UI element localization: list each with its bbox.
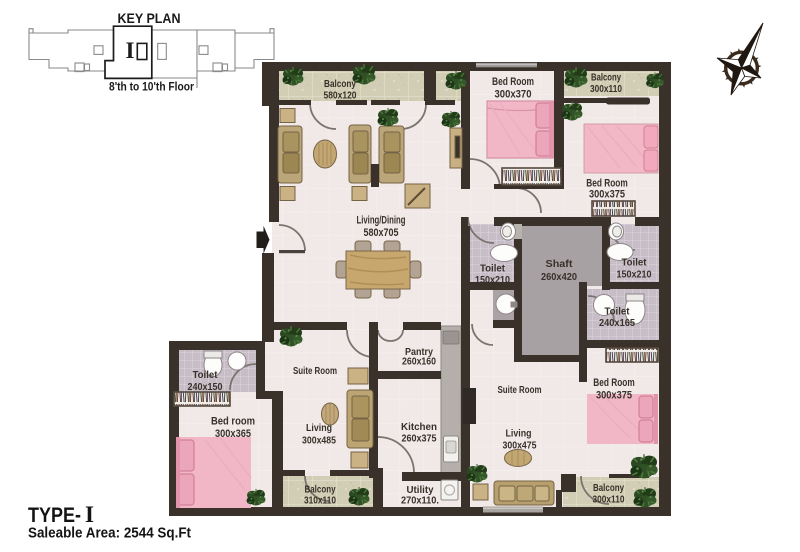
- svg-text:Suite Room: Suite Room: [498, 384, 542, 396]
- svg-text:Bed Room: Bed Room: [593, 377, 635, 389]
- svg-text:Living: Living: [506, 428, 532, 440]
- svg-text:240x150: 240x150: [188, 382, 223, 393]
- svg-text:Toilet: Toilet: [605, 307, 631, 318]
- svg-text:300x375: 300x375: [596, 390, 632, 402]
- svg-text:580x705: 580x705: [364, 227, 399, 239]
- svg-text:310x110: 310x110: [304, 496, 336, 507]
- svg-text:Bed room: Bed room: [211, 416, 255, 428]
- svg-text:270x110.: 270x110.: [401, 496, 439, 507]
- svg-text:300x370: 300x370: [495, 89, 532, 101]
- svg-text:Living: Living: [306, 422, 332, 434]
- svg-text:300x110: 300x110: [590, 84, 622, 95]
- svg-text:580x120: 580x120: [324, 91, 357, 102]
- svg-text:Toilet: Toilet: [480, 264, 506, 275]
- svg-text:300x475: 300x475: [503, 440, 537, 452]
- svg-text:260x420: 260x420: [541, 271, 577, 283]
- svg-text:Bed Room: Bed Room: [492, 76, 534, 88]
- svg-text:300x375: 300x375: [589, 189, 625, 201]
- svg-text:8'th to 10'th Floor: 8'th to 10'th Floor: [109, 80, 194, 94]
- svg-text:Living/Dining: Living/Dining: [357, 215, 406, 227]
- svg-text:Balcony: Balcony: [591, 73, 621, 84]
- svg-text:260x375: 260x375: [402, 433, 437, 445]
- svg-text:Balcony: Balcony: [593, 483, 624, 494]
- svg-text:Utility: Utility: [407, 485, 434, 496]
- svg-text:Toilet: Toilet: [193, 370, 219, 381]
- svg-text:I: I: [85, 502, 94, 527]
- svg-text:KEY PLAN: KEY PLAN: [118, 10, 181, 26]
- svg-text:Balcony: Balcony: [305, 485, 336, 496]
- svg-text:300x485: 300x485: [302, 435, 336, 447]
- svg-text:Kitchen: Kitchen: [401, 421, 437, 433]
- svg-text:Toilet: Toilet: [622, 258, 648, 269]
- svg-text:Balcony: Balcony: [324, 79, 356, 90]
- svg-text:Saleable Area: 2544 Sq.Ft: Saleable Area: 2544 Sq.Ft: [28, 525, 191, 542]
- svg-text:I: I: [126, 38, 135, 63]
- svg-text:300x365: 300x365: [215, 428, 251, 440]
- svg-text:Suite Room: Suite Room: [293, 365, 337, 377]
- svg-text:150x210: 150x210: [617, 270, 652, 281]
- svg-text:150x210: 150x210: [475, 275, 510, 286]
- svg-text:Shaft: Shaft: [546, 258, 574, 270]
- svg-text:240x165: 240x165: [599, 318, 635, 329]
- svg-text:260x160: 260x160: [402, 357, 436, 368]
- svg-text:300x110: 300x110: [593, 495, 625, 506]
